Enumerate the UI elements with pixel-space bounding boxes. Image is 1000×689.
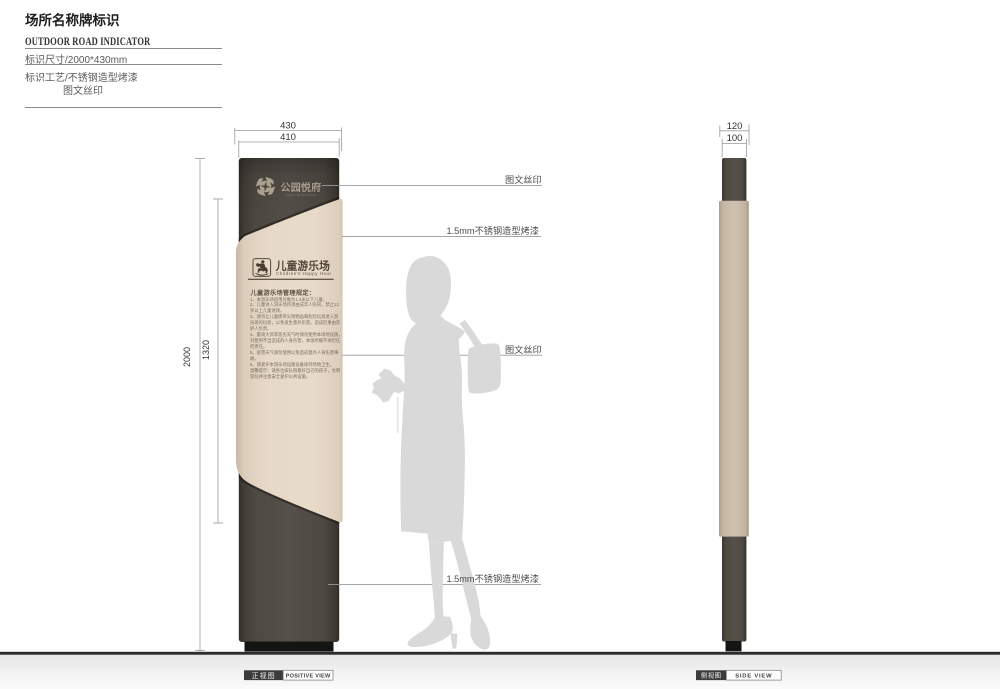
svg-text:SIDE VIEW: SIDE VIEW <box>735 674 772 680</box>
svg-text:120: 120 <box>727 121 743 132</box>
svg-text:1.5mm不锈钢造型烤漆: 1.5mm不锈钢造型烤漆 <box>447 573 539 584</box>
svg-text:PARK MANSIONS: PARK MANSIONS <box>286 193 317 197</box>
svg-text:100: 100 <box>727 133 743 144</box>
svg-text:1.5mm不锈钢造型烤漆: 1.5mm不锈钢造型烤漆 <box>447 225 539 236</box>
svg-text:侧视图: 侧视图 <box>701 671 722 680</box>
svg-text:2000: 2000 <box>182 347 192 367</box>
svg-text:POSITIVE VIEW: POSITIVE VIEW <box>286 674 331 680</box>
svg-text:430: 430 <box>280 121 296 132</box>
svg-text:图文丝印: 图文丝印 <box>505 344 542 355</box>
svg-text:图文丝印: 图文丝印 <box>505 174 542 185</box>
svg-text:410: 410 <box>280 132 296 143</box>
svg-text:正视图: 正视图 <box>252 671 276 680</box>
svg-text:1320: 1320 <box>201 340 211 360</box>
svg-text:Children's Happy Hour: Children's Happy Hour <box>276 271 332 276</box>
